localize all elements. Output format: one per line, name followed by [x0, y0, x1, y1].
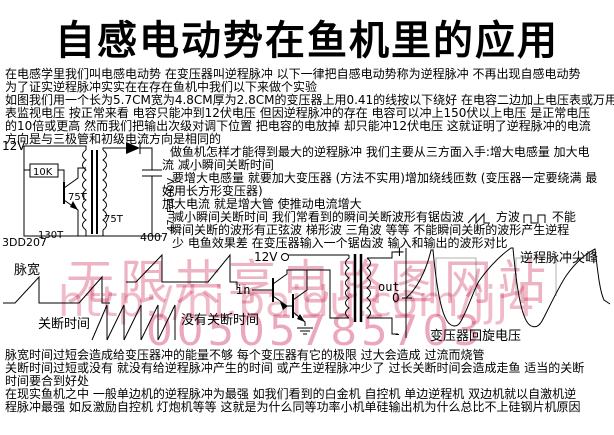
large-sawtooth — [126, 255, 237, 290]
capacitor-label: 47uF/400V — [166, 178, 177, 232]
spike-label: 逆程脉冲尖峰 — [520, 250, 598, 266]
square-wave-icon — [523, 212, 549, 224]
waveform-text: 方波 — [496, 210, 520, 224]
supply-label: 12V — [2, 139, 26, 153]
dense-sawtooth — [92, 305, 175, 340]
flyback-label: 变压器回旋电压 — [430, 328, 521, 344]
sawtooth-with-gaps — [3, 277, 110, 303]
waveform-diagrams: 脉宽 关断时间 没有关断时间 12V in out + — [0, 244, 614, 348]
waveform-text: 不能 — [552, 210, 576, 224]
winding-lower-label: 75T — [104, 214, 124, 225]
pulse-width-label: 脉宽 — [14, 262, 40, 278]
waveform-text: 减小瞬间关断时间 我们常看到的瞬间关断波形有锯齿波 — [172, 210, 464, 224]
bottom-line: 程脉冲最强 如反激励自控机 灯炮机等等 这就是为什么同等功率小机单硅输出机为什么… — [5, 401, 580, 414]
sawtooth-wave-icon — [467, 212, 493, 224]
darlington-driver — [252, 255, 349, 334]
plus-label: + — [394, 245, 405, 260]
no-off-time-label: 没有关断时间 — [181, 313, 259, 328]
output-axis — [402, 248, 412, 338]
minus-label: - — [395, 327, 400, 342]
input-label: in — [236, 283, 250, 297]
diode-symbol — [126, 142, 140, 154]
bottom-line: 关断时间过短或没有 就没有给逆程脉冲产生的时间 或产生逆程脉冲少了 过长关断时间… — [5, 362, 584, 375]
page-title: 自感电动势在鱼机里的应用 — [0, 8, 614, 66]
zero-label: 0 — [392, 291, 400, 305]
diode-label: 4007 — [140, 231, 168, 244]
resistor-label: 10K — [33, 167, 53, 178]
supply-terminal-icon — [282, 254, 289, 261]
off-time-label: 关断时间 — [38, 317, 90, 332]
driver-supply-label: 12V — [254, 250, 278, 264]
winding-upper-label: 75T — [68, 192, 88, 203]
emitter-arrow-icon — [297, 314, 305, 322]
emitter-arrow-icon — [280, 302, 288, 310]
document-page: 自感电动势在鱼机里的应用 在电感学里我们叫电感电动势 在变压器叫逆程脉冲 以下一… — [0, 0, 614, 435]
